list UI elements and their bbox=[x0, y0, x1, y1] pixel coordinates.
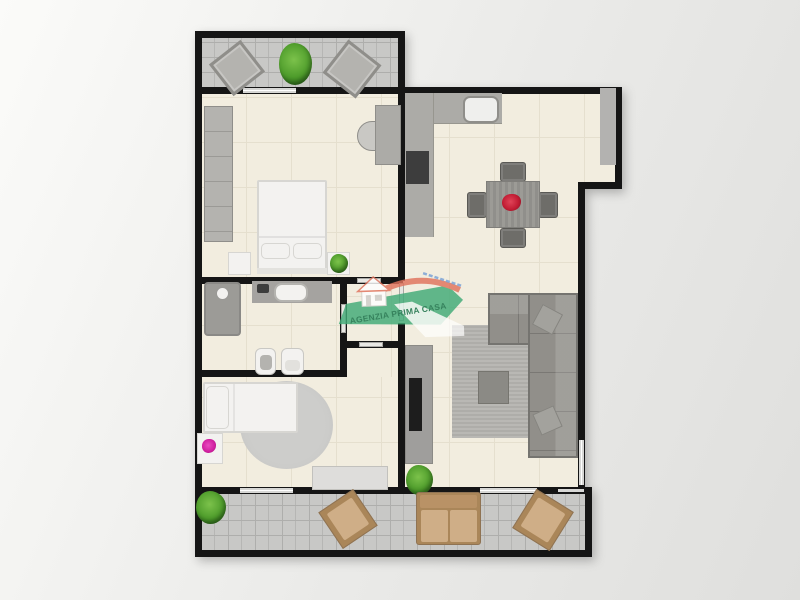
dining-chair-icon bbox=[500, 162, 526, 182]
logo-house-window bbox=[375, 295, 382, 301]
logo-house-door bbox=[366, 295, 371, 306]
wall-segment bbox=[195, 31, 405, 38]
agency-logo-watermark: AGENZIA PRIMA CASA bbox=[335, 258, 468, 342]
tall-cabinet-icon bbox=[600, 88, 616, 165]
armchair-cushion bbox=[520, 497, 565, 543]
wall-segment bbox=[195, 550, 592, 557]
window bbox=[480, 488, 537, 493]
ottoman-icon bbox=[478, 371, 509, 404]
apartment-floorplan: AGENZIA PRIMA CASA bbox=[0, 0, 800, 600]
kitchen-sink-icon bbox=[463, 96, 499, 123]
bed-headboard bbox=[257, 268, 327, 274]
bathroom-sink-icon bbox=[274, 283, 308, 302]
loveseat-icon bbox=[416, 492, 481, 545]
toilet-bowl bbox=[285, 360, 300, 371]
dining-chair-icon bbox=[500, 228, 526, 248]
window bbox=[579, 440, 584, 485]
pillow-icon bbox=[261, 243, 290, 259]
cooktop-icon bbox=[406, 151, 429, 184]
door-bedroom-second bbox=[359, 342, 383, 347]
dining-chair-icon bbox=[467, 192, 487, 218]
window bbox=[240, 488, 293, 493]
terrace-door-sill bbox=[558, 489, 584, 492]
wall-segment bbox=[398, 323, 405, 494]
wall-segment bbox=[615, 87, 622, 189]
double-bed-icon bbox=[257, 180, 327, 273]
bed-fold-line bbox=[259, 236, 325, 238]
bed-fold-line bbox=[233, 384, 235, 431]
pillow-icon bbox=[206, 386, 229, 429]
agency-logo: AGENZIA PRIMA CASA bbox=[335, 258, 468, 342]
dining-chair-icon bbox=[538, 192, 558, 218]
nightstand-icon bbox=[228, 252, 251, 275]
armchair-cushion bbox=[327, 497, 370, 540]
pillow-icon bbox=[293, 243, 322, 259]
loveseat-backrest bbox=[420, 495, 477, 508]
floorplan-screenshot: AGENZIA PRIMA CASA bbox=[0, 0, 800, 600]
loveseat-cushion bbox=[421, 510, 448, 542]
shower-head-icon bbox=[216, 287, 229, 300]
sideboard-icon bbox=[312, 466, 388, 490]
wardrobe-icon bbox=[204, 106, 233, 242]
bidet-basin bbox=[260, 355, 272, 370]
window bbox=[243, 88, 296, 93]
wall-segment bbox=[398, 31, 405, 94]
wall-segment bbox=[195, 31, 202, 557]
desk-icon bbox=[375, 105, 401, 165]
logo-house-roof bbox=[357, 276, 389, 291]
tv-icon bbox=[409, 378, 422, 431]
faucet-icon bbox=[257, 284, 269, 293]
bedroom-second-floor-ext bbox=[347, 348, 398, 377]
loveseat-cushion bbox=[450, 510, 477, 542]
wall-segment bbox=[585, 487, 592, 557]
